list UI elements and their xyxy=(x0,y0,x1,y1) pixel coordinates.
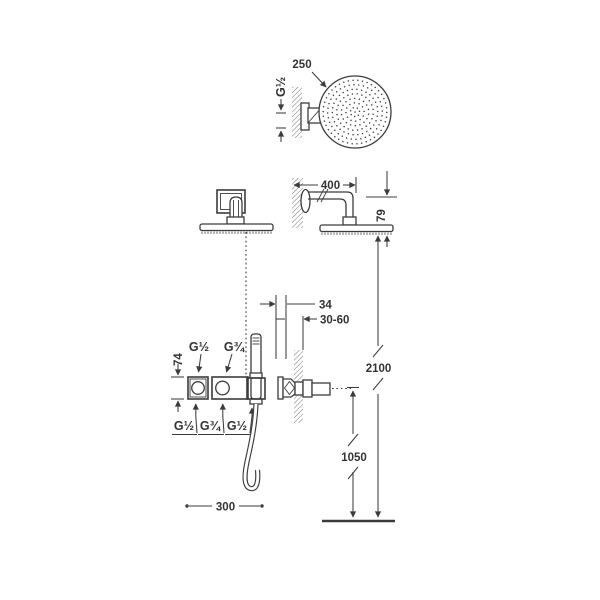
dim-arm-drop: 79 xyxy=(376,209,388,222)
spread-dimension: 300 xyxy=(185,502,263,514)
label-mixer-bottom-left: G½ xyxy=(174,419,194,433)
outlet-neck xyxy=(295,382,303,395)
arm-connector-nut xyxy=(343,217,356,225)
wall-arm-side-view: 400 79 xyxy=(294,171,397,247)
leader-bottom-left xyxy=(196,404,197,433)
head-plate-side xyxy=(320,225,393,232)
label-mixer-top-left: G½ xyxy=(189,340,209,354)
dim-2100-break-2 xyxy=(373,378,383,390)
nozzle-fringe-side xyxy=(322,233,391,235)
label-head-inlet: G½ xyxy=(274,77,288,97)
dim-valve-depth: 34 xyxy=(319,300,332,312)
dim-height-outlet: 1050 xyxy=(341,452,367,464)
dim-valve-recess: 30-60 xyxy=(320,315,349,327)
shower-system-drawing: 250 G½ 400 79 xyxy=(0,0,600,600)
dim-arm-length: 400 xyxy=(321,180,340,192)
label-mixer-top-right: G¾ xyxy=(224,340,246,354)
dim-height-overhead: 2100 xyxy=(366,363,392,375)
leader-top-right xyxy=(227,354,233,372)
outlet-collar xyxy=(303,380,312,397)
dim-head-diameter-leader xyxy=(312,72,326,87)
leader-top-left xyxy=(199,354,202,372)
wall-rosette xyxy=(301,190,310,213)
dim-300-dot-right xyxy=(260,504,263,507)
dim-head-diameter: 250 xyxy=(292,59,311,71)
technical-installation-diagram: 250 G½ 400 79 xyxy=(0,0,600,600)
wall-sections xyxy=(292,87,303,423)
mixer-box-right xyxy=(212,377,248,399)
label-mixer-bottom-right: G½ xyxy=(227,419,247,433)
hand-shower xyxy=(245,334,265,489)
arm-nut xyxy=(227,217,244,224)
dim-mixer-height: 74 xyxy=(173,353,185,366)
dim-2100-break-1 xyxy=(373,345,383,357)
dim-1050-break-1 xyxy=(348,434,358,446)
label-mixer-bottom-mid: G¾ xyxy=(200,419,222,433)
dim-300-dot-left xyxy=(185,504,188,507)
arm-tube-inner xyxy=(308,199,346,217)
outlet-bracket xyxy=(278,377,283,399)
dim-spread: 300 xyxy=(216,502,235,514)
vertical-arm xyxy=(230,197,242,218)
nozzle-fringe-front xyxy=(202,232,271,234)
leader-bottom-mid xyxy=(223,404,224,433)
outlet-body xyxy=(312,383,330,395)
mixer-box-left xyxy=(188,377,208,399)
head-plate-front xyxy=(200,224,273,231)
wall-outlet-side-view xyxy=(278,377,351,399)
round-shower-head-view: 250 G½ xyxy=(274,59,391,148)
valve-recess-dimensions: 34 30-60 xyxy=(260,295,349,359)
thermostatic-mixer-front-view: 74 G½ G¾ G½ G¾ G½ xyxy=(171,340,252,435)
height-dimensions: 2100 1050 xyxy=(322,236,395,521)
